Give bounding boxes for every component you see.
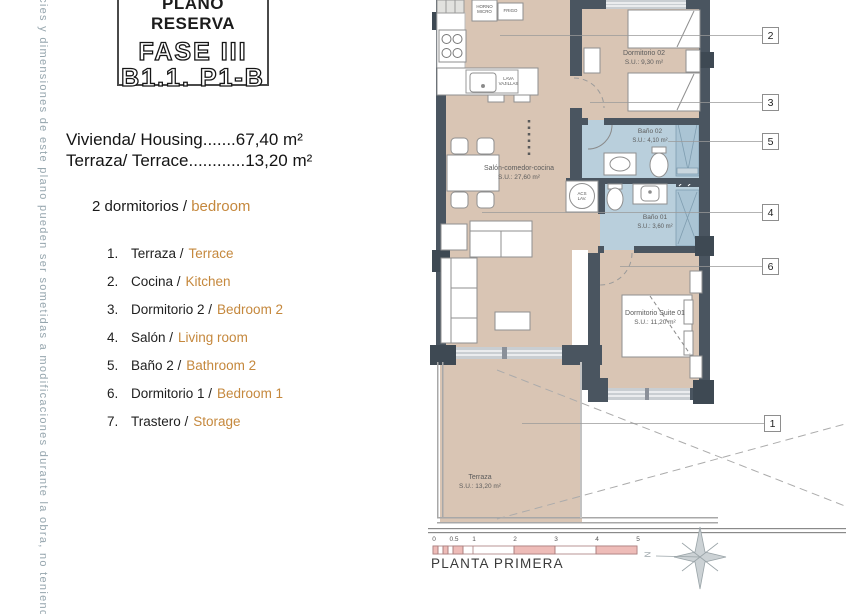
callout-3-bedroom2: 3 (762, 94, 779, 111)
scale-tick: 0.5 (445, 536, 463, 543)
housing-area-line: Vivienda/ Housing.......67,40 m² (66, 129, 312, 150)
north-indicator: N (643, 552, 652, 558)
bedrooms-en: bedroom (191, 198, 250, 215)
legend-item-bedroom1: 6.Dormitorio 1 /Bedroom 1 (107, 387, 283, 401)
dishwasher-label: LAVA VAJILLAS (496, 76, 521, 86)
unit-label: B1.1. P1-B (119, 65, 267, 91)
oven-label: HORNO MICRO (472, 4, 497, 14)
water-heater-label: ACS LAV. (568, 191, 596, 201)
bedrooms-line: 2 dormitorios / bedroom (92, 198, 250, 215)
callout-6-bedroom1: 6 (762, 258, 779, 275)
callout-5-bathroom2: 5 (762, 133, 779, 150)
legend-item-livingroom: 4.Salón /Living room (107, 331, 283, 345)
scale-tick: 4 (588, 536, 606, 543)
scale-tick: 3 (547, 536, 565, 543)
title-block: PLANO RESERVA FASE III B1.1. P1-B (117, 0, 269, 86)
living-room-label: Salón-comedor-cocina S.U.: 27,60 m² (454, 165, 584, 182)
room-legend: 1.Terraza /Terrace 2.Cocina /Kitchen 3.D… (107, 247, 283, 443)
bedroom2-label: Dormitorio 02 S.U.: 9,30 m² (586, 50, 702, 67)
scale-tick: 1 (465, 536, 483, 543)
compass-icon (656, 527, 726, 589)
callout-4-livingroom: 4 (762, 204, 779, 221)
legend-item-bathroom2: 5.Baño 2 /Bathroom 2 (107, 359, 283, 373)
bed-icon (628, 73, 700, 111)
scale-tick: 0 (425, 536, 443, 543)
cooktop-icon (439, 30, 466, 62)
washbasin-icon (610, 157, 630, 171)
sofa-icon (441, 258, 477, 343)
floor-plan-page: rficies y dimensiones de este plano pued… (0, 0, 850, 614)
toilet-icon (650, 153, 668, 177)
legend-item-bedroom2: 3.Dormitorio 2 /Bedroom 2 (107, 303, 283, 317)
terrace-label: Terraza S.U.: 13,20 m² (420, 474, 540, 491)
side-disclaimer-text: rficies y dimensiones de este plano pued… (31, 0, 49, 614)
toilet-icon (607, 188, 623, 210)
legend-item-storage: 7.Trastero /Storage (107, 415, 283, 429)
legend-item-terrace: 1.Terraza /Terrace (107, 247, 283, 261)
scale-tick: 5 (629, 536, 647, 543)
scale-bar (433, 546, 637, 554)
bath2-label: Baño 02 S.U.: 4,10 m² (592, 128, 708, 145)
terrace-area-line: Terraza/ Terrace............13,20 m² (66, 150, 312, 171)
plan-caption: PLANTA PRIMERA (431, 556, 564, 571)
fridge-label: FRIGO (498, 8, 523, 13)
legend-item-kitchen: 2.Cocina /Kitchen (107, 275, 283, 289)
bedrooms-es: 2 dormitorios / (92, 198, 187, 215)
bath1-label: Baño 01 S.U.: 3,60 m² (597, 214, 713, 231)
suite-label: Dormitorio Suite 01 S.U.: 11,20 m² (597, 310, 713, 327)
sink-icon (470, 73, 496, 92)
area-summary: Vivienda/ Housing.......67,40 m² Terraza… (66, 129, 312, 171)
callout-2-kitchen: 2 (762, 27, 779, 44)
scale-tick: 2 (506, 536, 524, 543)
bed-icon (628, 10, 700, 48)
plan-reserve-label: PLANO RESERVA (119, 0, 267, 34)
phase-label: FASE III (119, 39, 267, 65)
callout-1-terrace: 1 (764, 415, 781, 432)
